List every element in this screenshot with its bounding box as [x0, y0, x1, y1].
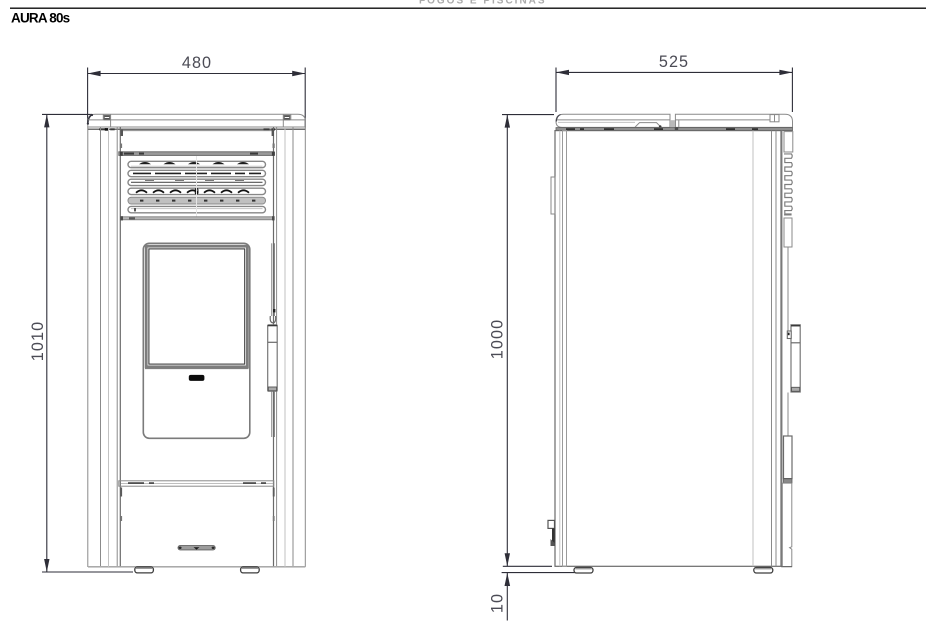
svg-text:FOGOS E PISCINAS: FOGOS E PISCINAS: [419, 0, 547, 6]
svg-text:1000: 1000: [489, 319, 507, 359]
svg-text:525: 525: [659, 53, 689, 71]
svg-text:10: 10: [489, 593, 507, 613]
svg-text:480: 480: [182, 54, 212, 72]
svg-text:1010: 1010: [29, 321, 47, 361]
svg-text:AURA 80s: AURA 80s: [11, 10, 70, 25]
